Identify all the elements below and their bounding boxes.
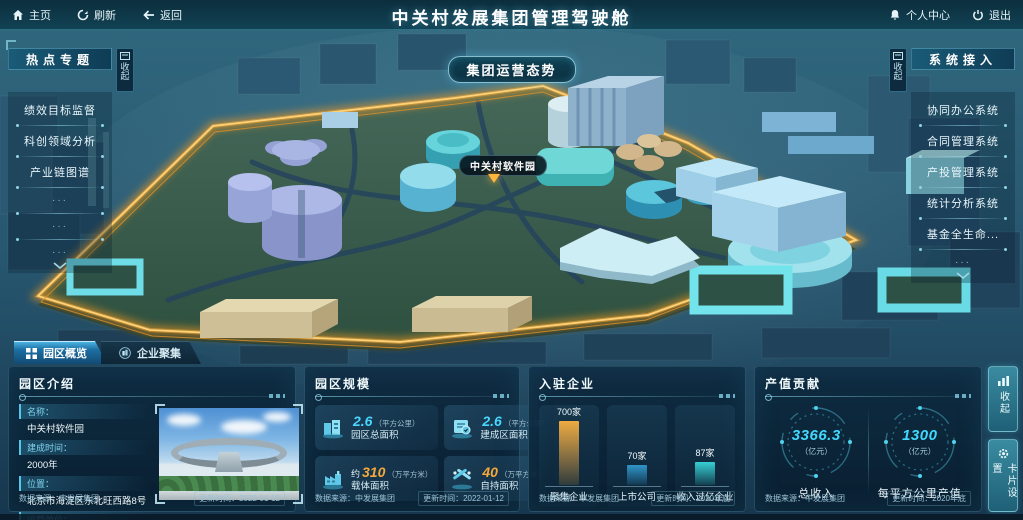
data-source: 数据来源：中发展集团	[315, 493, 395, 504]
data-source: 数据来源：中发展集团	[19, 493, 99, 504]
hot-topics-title: 热点专题	[8, 48, 112, 70]
panel-title-underline	[315, 396, 509, 397]
unit: （万平方米）	[387, 471, 432, 480]
field-label: 建成时间：	[19, 440, 149, 455]
system-access-collapse-button[interactable]: 收起	[889, 48, 907, 92]
power-icon	[972, 9, 984, 21]
gear-icon	[997, 448, 1010, 459]
panel-title: 园区规模	[315, 375, 509, 392]
top-bar: 主页 刷新 返回 中关村发展集团管理驾驶舱 个人中心 退出	[0, 0, 1023, 30]
chevron-down-icon[interactable]	[956, 272, 970, 279]
hot-topic-placeholder[interactable]: ···	[52, 195, 68, 206]
refresh-button[interactable]: 刷新	[77, 7, 116, 23]
updated-time: 更新时间：2020年底	[887, 491, 971, 506]
divider	[920, 249, 1006, 250]
factory-icon	[321, 468, 345, 490]
output-value-panel: 产值贡献 3366.3 （亿元）	[754, 366, 982, 512]
data-source: 数据来源：中发展集团	[539, 493, 619, 504]
data-source: 数据来源：中发展集团	[765, 493, 845, 504]
panel-title-underline	[765, 396, 971, 397]
chevron-down-icon[interactable]	[53, 262, 67, 269]
home-button[interactable]: 主页	[12, 7, 51, 23]
divider	[920, 156, 1006, 157]
scale-cell-total-area: 2.6 （平方公里） 园区总面积	[315, 405, 438, 450]
park-photo	[159, 408, 299, 500]
divider	[17, 213, 103, 214]
gauge-value: 3366.3	[792, 427, 841, 444]
unit: （平方公里）	[374, 420, 419, 429]
system-item[interactable]: 统计分析系统	[927, 195, 999, 211]
updated-time: 更新时间：2022-01-12	[418, 491, 509, 506]
card-settings-button[interactable]: 卡片设置	[988, 439, 1018, 512]
back-arrow-icon	[142, 9, 155, 21]
park-map-marker-icon	[488, 174, 500, 189]
bottom-tabs: 园区概览 企业聚集	[14, 341, 201, 364]
bar-chart-icon	[997, 375, 1010, 387]
refresh-icon	[77, 9, 89, 21]
tab-enterprise-cluster[interactable]: 企业聚集	[101, 341, 201, 364]
gauge-output-per-sqkm: 1300 （亿元） 每平方公里产值	[869, 401, 972, 501]
bar-value-label: 87家	[675, 446, 735, 459]
bar	[695, 462, 715, 485]
panel-icon	[120, 52, 130, 60]
divider	[17, 156, 103, 157]
panel-title-underline	[539, 396, 735, 397]
logout-button[interactable]: 退出	[972, 7, 1011, 23]
divider	[920, 187, 1006, 188]
home-icon	[12, 9, 24, 21]
field-value: 中关村软件园	[19, 419, 149, 440]
buildings-icon	[321, 417, 345, 439]
bottom-strip	[0, 514, 1023, 520]
hot-topic-item[interactable]: 产业链图谱	[30, 164, 90, 180]
tab-park-overview[interactable]: 园区概览	[14, 341, 107, 364]
crossed-tools-icon	[450, 468, 474, 490]
hot-topic-item[interactable]: 绩效目标监督	[24, 102, 96, 118]
updated-time: 更新时间：2022-01-12	[194, 491, 285, 506]
hot-topics-collapse-button[interactable]: 收起	[116, 48, 134, 92]
system-item-placeholder[interactable]: ···	[955, 257, 971, 268]
updated-time: 更新时间：2020年底	[651, 491, 735, 506]
field-label: 位置：	[19, 476, 149, 491]
personal-center-button[interactable]: 个人中心	[889, 7, 950, 23]
park-map-label[interactable]: 中关村软件园	[459, 155, 547, 176]
value: 310	[362, 464, 385, 480]
value-prefix: 约	[351, 469, 360, 479]
panels-collapse-button[interactable]: 收起	[988, 366, 1018, 432]
system-item[interactable]: 产投管理系统	[927, 164, 999, 180]
panel-title: 产值贡献	[765, 375, 971, 392]
value: 2.6	[482, 413, 501, 429]
panel-title: 园区介绍	[19, 375, 285, 392]
gauge-total-revenue: 3366.3 （亿元） 总收入	[765, 401, 868, 501]
gauge-unit: （亿元）	[800, 446, 832, 457]
back-button[interactable]: 返回	[142, 7, 182, 23]
metric-label: 园区总面积	[351, 431, 419, 442]
value: 2.6	[353, 413, 372, 429]
resident-enterprises-panel: 入驻企业 700家 聚集企业 70家 上市公司 87家	[528, 366, 746, 512]
system-access-title: 系统接入	[911, 48, 1015, 70]
enterprise-icon	[119, 347, 131, 359]
group-operation-status-button[interactable]: 集团运营态势	[447, 56, 575, 83]
hot-topics-panel: 热点专题 收起 绩效目标监督 科创领域分析 产业链图谱 ··· ··· ···	[8, 48, 134, 273]
bar	[559, 421, 579, 485]
document-check-icon	[450, 417, 474, 439]
panel-icon	[893, 52, 903, 60]
hot-topic-item[interactable]: 科创领域分析	[24, 133, 96, 149]
field-value: 2000年	[19, 455, 149, 476]
bottom-panels-row: 园区介绍 名称： 中关村软件园 建成时间： 2000年 位置： 北京市海淀区东北…	[8, 366, 982, 512]
system-access-panel: 收起 系统接入 协同办公系统 合同管理系统 产投管理系统 统计分析系统 基金全生…	[889, 48, 1015, 283]
field-label: 名称：	[19, 404, 149, 419]
hot-topic-placeholder[interactable]: ···	[52, 221, 68, 232]
system-item[interactable]: 基金全生命...	[927, 226, 999, 242]
system-item[interactable]: 协同办公系统	[927, 102, 999, 118]
divider	[17, 125, 103, 126]
divider	[17, 239, 103, 240]
bell-icon	[889, 9, 901, 21]
bar-value-label: 700家	[539, 405, 599, 418]
grid-icon	[26, 348, 37, 359]
divider	[920, 218, 1006, 219]
park-photo-frame	[155, 404, 303, 504]
park-intro-panel: 园区介绍 名称： 中关村软件园 建成时间： 2000年 位置： 北京市海淀区东北…	[8, 366, 296, 512]
gauge-unit: （亿元）	[904, 446, 936, 457]
park-scale-panel: 园区规模 2.6 （平方公里） 园区总面积	[304, 366, 520, 512]
system-item[interactable]: 合同管理系统	[927, 133, 999, 149]
bar-value-label: 70家	[607, 449, 667, 462]
app-title: 中关村发展集团管理驾驶舱	[392, 4, 632, 29]
side-buttons-column: 收起 卡片设置	[988, 366, 1018, 512]
dashboard-screen: 主页 刷新 返回 中关村发展集团管理驾驶舱 个人中心 退出 集团运营态势 中关	[0, 0, 1023, 520]
value: 40	[482, 464, 498, 480]
divider	[17, 187, 103, 188]
gauge-value: 1300	[902, 427, 937, 444]
panel-title: 入驻企业	[539, 375, 735, 392]
hot-topic-placeholder[interactable]: ···	[52, 247, 68, 258]
divider	[920, 125, 1006, 126]
bar	[627, 465, 647, 485]
panel-title-underline	[19, 396, 285, 397]
